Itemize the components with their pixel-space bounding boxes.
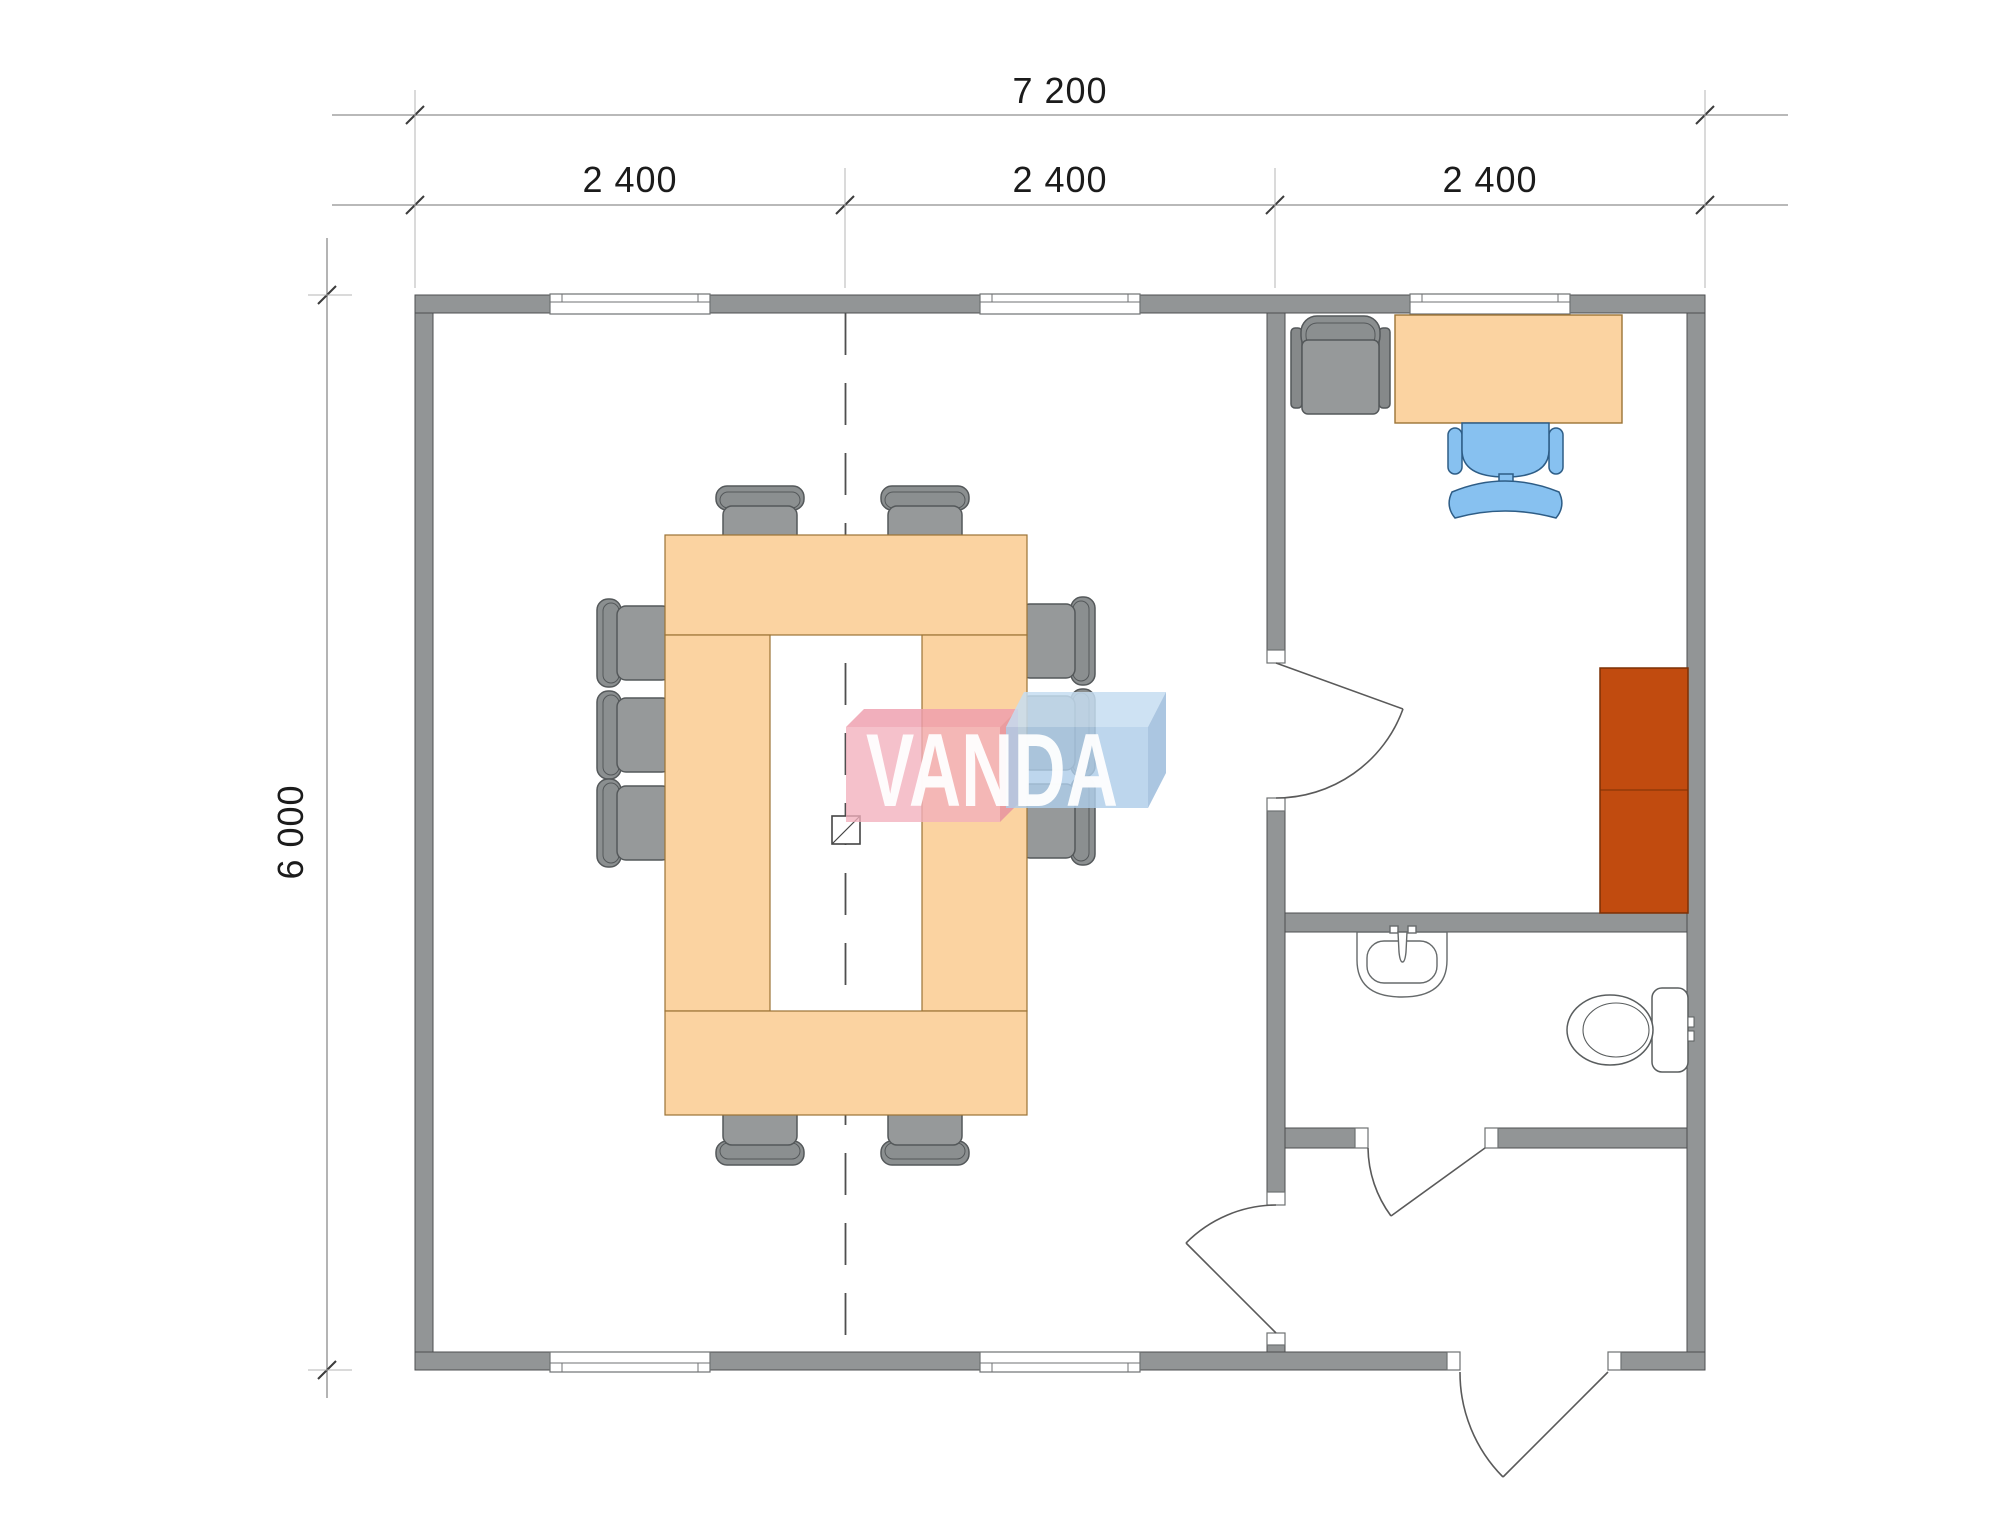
wall-right: [1687, 313, 1705, 1352]
meeting-chair-right-1: [1021, 597, 1095, 685]
logo-text: VANDA: [866, 713, 1118, 829]
meeting-chair-left-1: [597, 599, 671, 687]
wall-interior-vertical-lower: [1267, 798, 1285, 1205]
conference-table-bottom-section: [665, 1011, 1027, 1115]
dimension-label-total-width: 7 200: [1012, 70, 1107, 111]
wall-bathroom-bottom-right: [1485, 1128, 1687, 1148]
dimension-label-total-height: 6 000: [270, 784, 311, 879]
window-top-1: [550, 294, 710, 314]
window-top-3: [1410, 294, 1570, 314]
toilet: [1567, 988, 1694, 1072]
desk-chair-seat: [1462, 423, 1549, 477]
wall-office-bathroom: [1285, 913, 1687, 932]
dimension-label-module-1: 2 400: [582, 159, 677, 200]
wardrobe-cabinet: [1600, 668, 1688, 913]
meeting-chair-left-2: [597, 691, 671, 779]
sink: [1357, 926, 1447, 997]
office-lounge-chair: [1291, 316, 1390, 414]
wall-left: [415, 313, 433, 1352]
toilet-tank: [1652, 988, 1688, 1072]
meeting-chair-left-3: [597, 779, 671, 867]
dimension-label-module-3: 2 400: [1442, 159, 1537, 200]
dimension-label-module-2: 2 400: [1012, 159, 1107, 200]
window-bottom-1: [550, 1352, 710, 1372]
floor-plan-canvas: 7 200 2 400 2 400 2 400 6 000: [0, 0, 2000, 1516]
window-bottom-2: [980, 1352, 1140, 1372]
window-top-2: [980, 294, 1140, 314]
toilet-bowl-rim: [1583, 1003, 1649, 1057]
wall-bottom-right-part: [1608, 1352, 1705, 1370]
office-desk: [1395, 315, 1622, 423]
desk-chair-armrest-right: [1549, 428, 1563, 474]
floor-plan-drawing: 7 200 2 400 2 400 2 400 6 000: [0, 0, 2000, 1516]
desk-chair-armrest-left: [1448, 428, 1462, 474]
wall-interior-vertical-upper: [1267, 313, 1285, 663]
conference-table-left-section: [665, 635, 770, 1011]
conference-table-top-section: [665, 535, 1027, 635]
